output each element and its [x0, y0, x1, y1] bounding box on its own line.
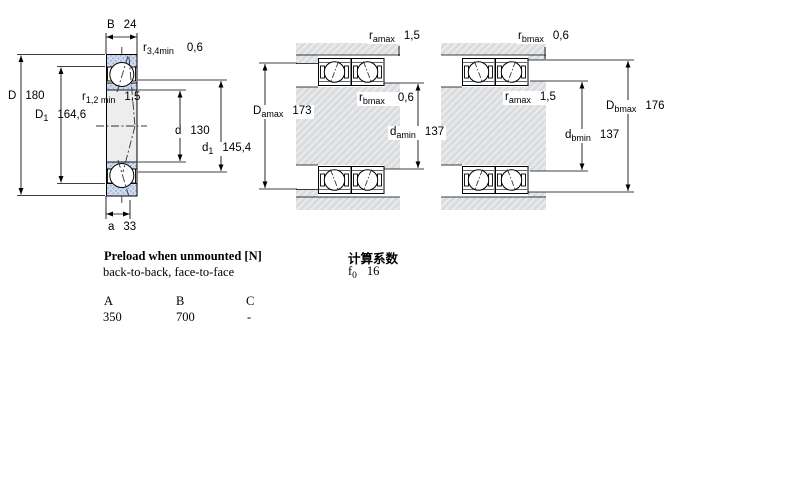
preload-col-A: A	[104, 294, 113, 309]
dim-label-rbmax-right: rbmax0,6	[516, 30, 571, 44]
preload-title: Preload when unmounted [N]	[104, 249, 262, 264]
mounting-diagram-right	[441, 43, 634, 210]
preload-col-B: B	[176, 294, 184, 309]
dim-label-D: D180	[8, 90, 45, 103]
dim-label-r12: r1,2 min1,5	[82, 91, 140, 105]
dim-label-ramax-right: ramax1,5	[503, 91, 558, 105]
dim-label-ramax-left: ramax1,5	[367, 30, 422, 44]
dim-label-dbmin: dbmin137	[563, 129, 621, 143]
preload-val-B: 700	[176, 310, 195, 325]
bearing-drawing-page: B24 r3,4min0,6 D180 D1164,6 r1,2 min1,5 …	[0, 0, 800, 500]
dim-label-d1: d1145,4	[200, 142, 253, 156]
ball	[110, 164, 134, 188]
preload-val-C: -	[247, 310, 251, 325]
dim-label-d: d130	[173, 125, 212, 138]
dim-label-B: B24	[107, 19, 136, 32]
preload-subtitle: back-to-back, face-to-face	[103, 265, 234, 280]
dim-label-r34: r3,4min0,6	[143, 42, 203, 56]
dim-label-damin: damin137	[388, 126, 446, 140]
dim-label-D1: D1164,6	[35, 109, 86, 123]
preload-val-A: 350	[103, 310, 122, 325]
dim-label-Damax: Damax173	[251, 105, 314, 119]
dim-label-Dbmax: Dbmax176	[604, 100, 667, 114]
preload-col-C: C	[246, 294, 254, 309]
dim-label-rbmax-left: rbmax0,6	[357, 92, 416, 106]
calculation-factor-f0: f016	[348, 264, 379, 281]
dim-label-a: a33	[108, 221, 136, 234]
